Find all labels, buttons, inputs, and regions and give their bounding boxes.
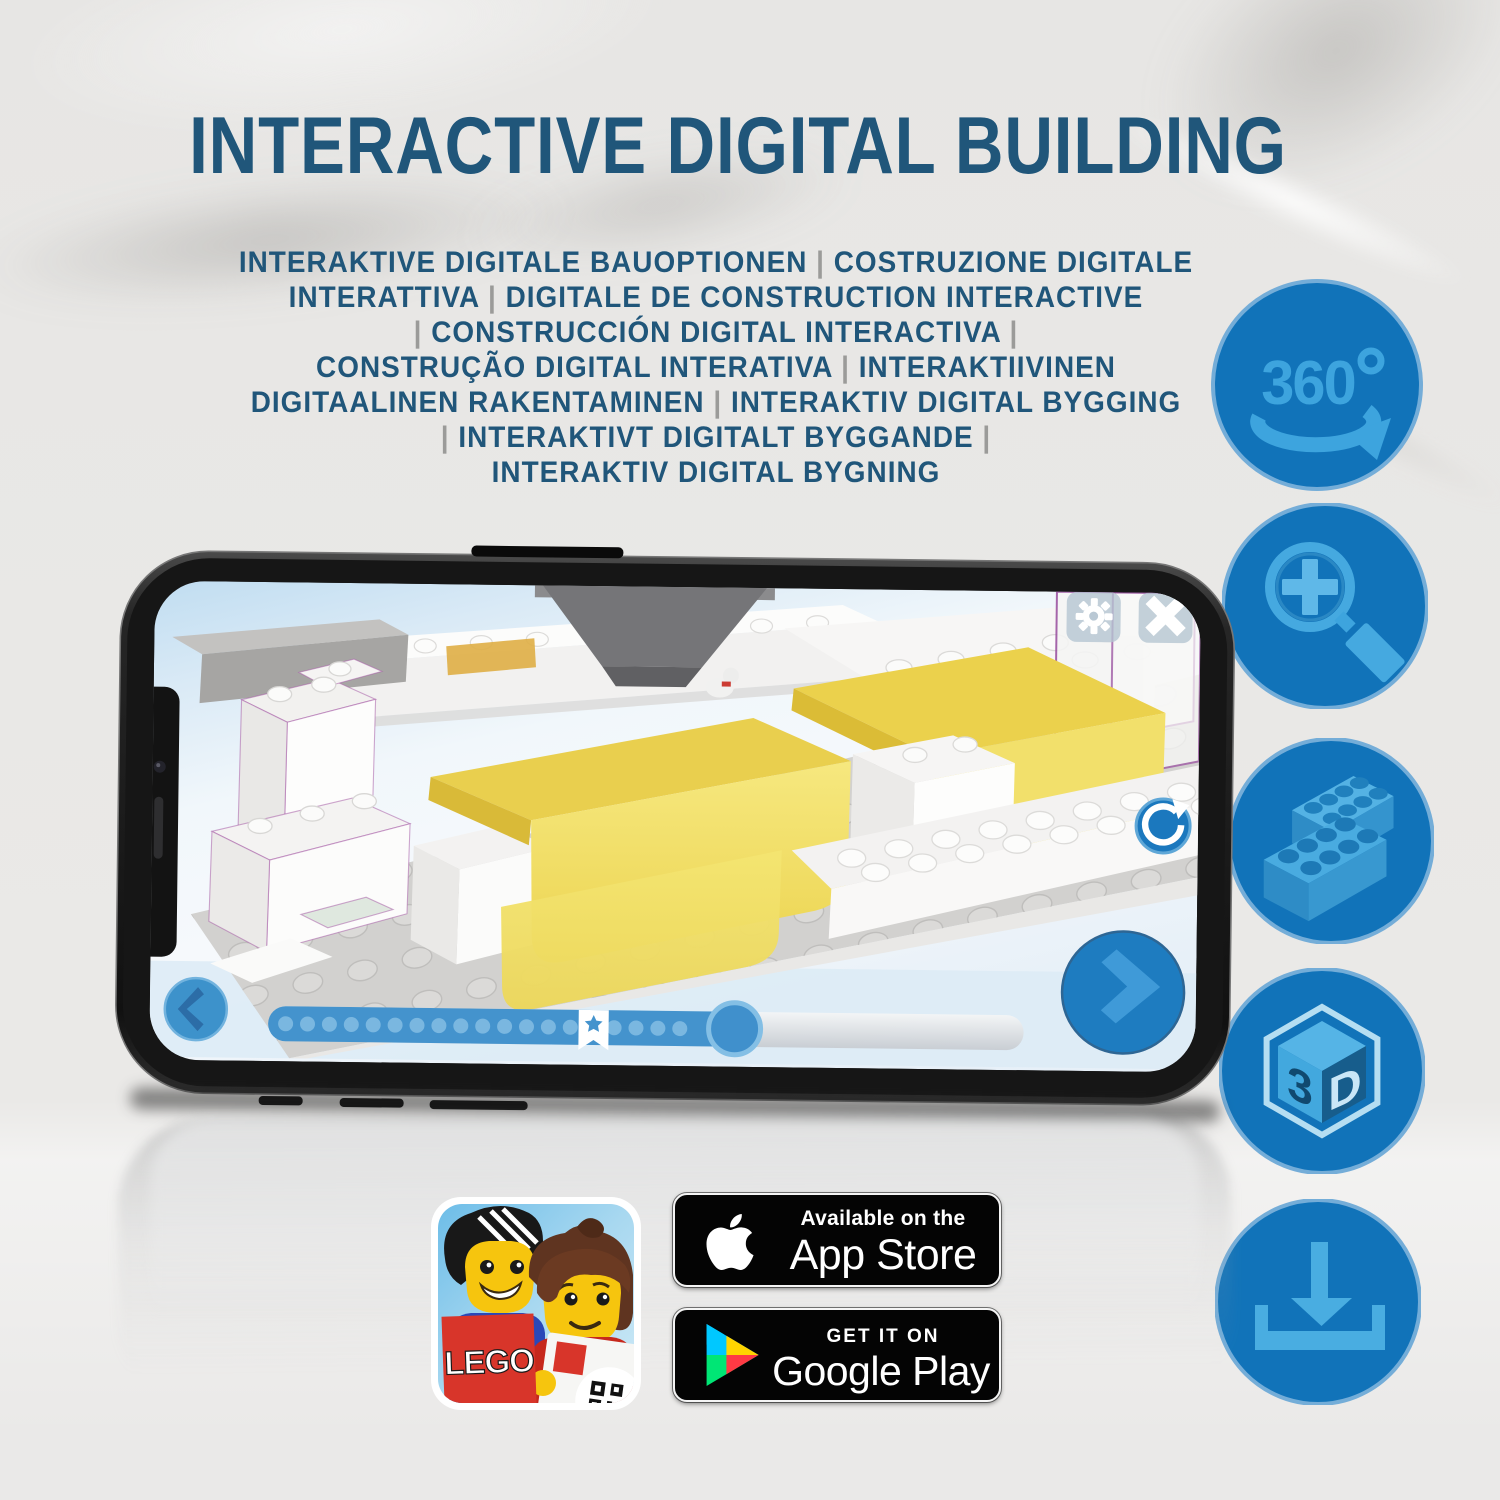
svg-text:360: 360 [1261, 348, 1355, 417]
svg-text:LEGO: LEGO [444, 1342, 535, 1382]
